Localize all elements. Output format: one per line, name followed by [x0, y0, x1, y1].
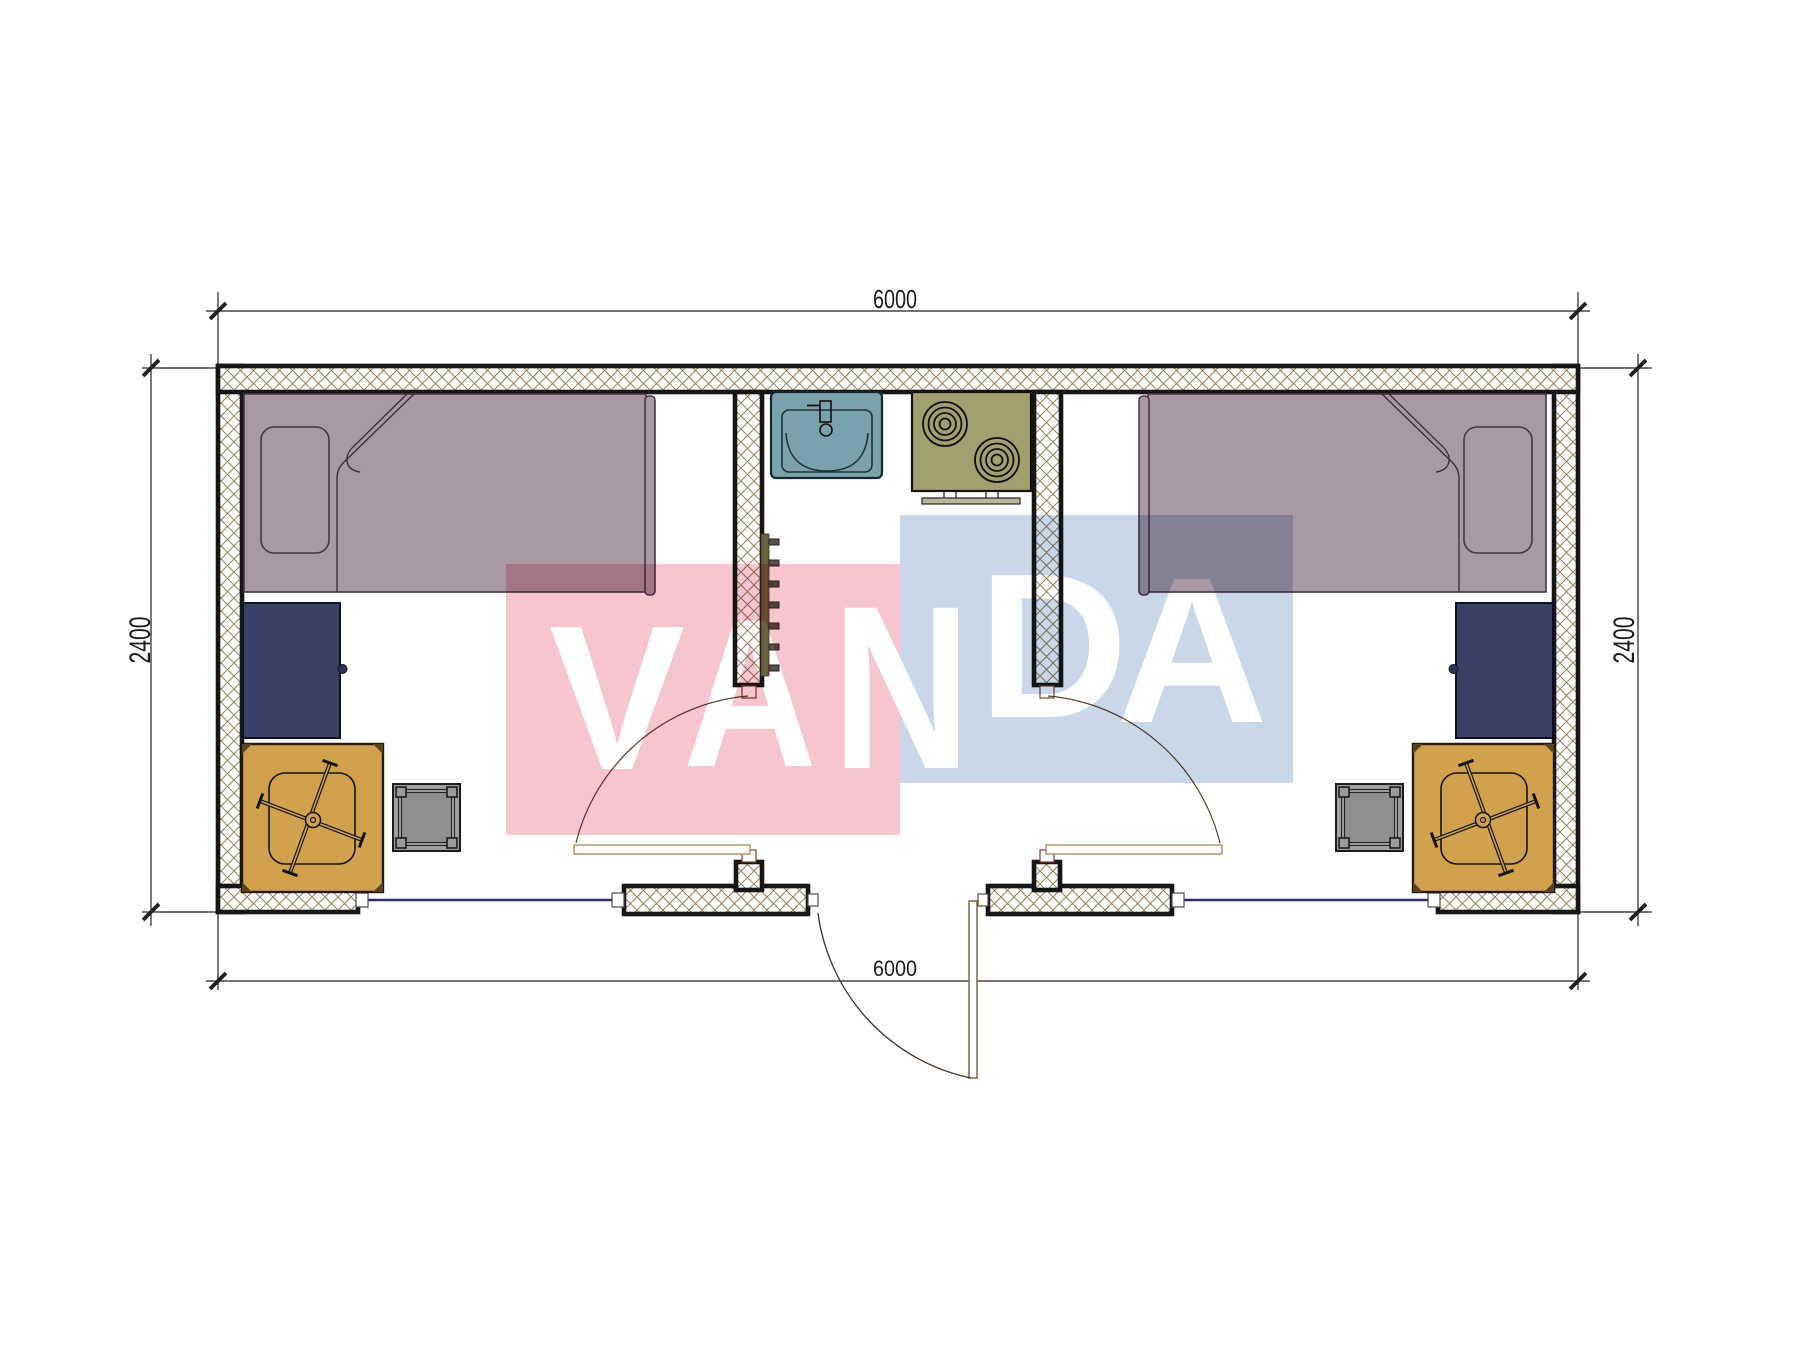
svg-text:6000: 6000 — [873, 284, 917, 314]
svg-text:2400: 2400 — [124, 617, 157, 664]
svg-text:2400: 2400 — [1608, 617, 1641, 664]
svg-text:6000: 6000 — [873, 956, 917, 981]
